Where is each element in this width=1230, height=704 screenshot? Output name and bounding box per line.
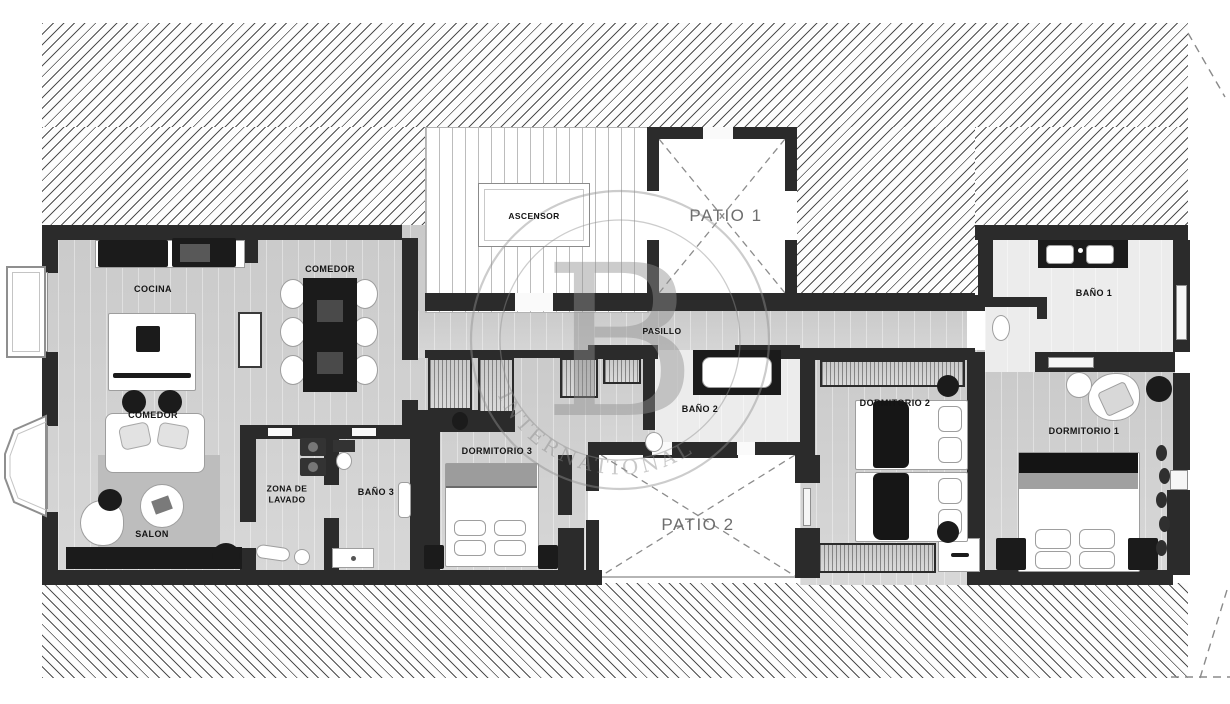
kitchen-appliance (98, 240, 168, 267)
room-label-zona-line2: LAVADO (268, 495, 305, 505)
stove (172, 238, 236, 267)
watermark-letter: B (543, 220, 697, 465)
vanity-counter (1038, 240, 1128, 268)
sink (1086, 245, 1114, 264)
pillow (1079, 529, 1115, 549)
chaise-seat (1097, 381, 1135, 417)
pillow (1079, 551, 1115, 569)
cooktop (180, 244, 210, 262)
plant (1156, 540, 1167, 556)
bedside-lamp (937, 521, 959, 543)
wall (985, 570, 1173, 585)
wall (978, 297, 1038, 307)
plant (1159, 468, 1170, 484)
sofa-cushion (118, 421, 152, 451)
wall (795, 455, 820, 483)
pillow (494, 520, 526, 536)
hatch-region-mid (797, 127, 978, 295)
window (1176, 285, 1187, 340)
dresser-handle (951, 553, 969, 557)
room-label-zona-line1: ZONA DE (267, 484, 308, 494)
room-label-dormitorio2: DORMITORIO 2 (860, 398, 931, 408)
door-opening (703, 127, 733, 139)
room-label-dormitorio1: DORMITORIO 1 (1049, 426, 1120, 436)
pillow (938, 406, 962, 432)
dining-table (303, 278, 357, 392)
door-opening (268, 428, 292, 436)
hatch-region-top-left (42, 127, 425, 225)
dashed-boundary-top-right (1180, 25, 1230, 105)
balcony-inner-line (12, 272, 40, 352)
window (803, 488, 811, 526)
door-opening (352, 428, 376, 436)
pillow (938, 478, 962, 504)
coffee-table-book (151, 495, 173, 514)
wall (978, 240, 993, 300)
plant (1156, 445, 1167, 461)
pillow (454, 540, 486, 556)
toilet-bowl (336, 452, 352, 470)
window (1170, 470, 1188, 490)
plant (212, 543, 240, 569)
bed-runner (873, 473, 909, 540)
hatch-region-bottom (42, 583, 1188, 678)
pillow (454, 520, 486, 536)
pillow (938, 437, 962, 463)
wall (1173, 373, 1190, 470)
wall (800, 360, 815, 455)
plant-pot (1146, 376, 1172, 402)
wall (240, 548, 256, 570)
placemat (317, 352, 343, 374)
dryer (300, 458, 326, 476)
pillow (1035, 529, 1071, 549)
toilet (333, 440, 355, 452)
wardrobe (818, 543, 936, 573)
room-label-salon: SALON (135, 529, 169, 539)
bed (855, 400, 968, 470)
wall (785, 240, 797, 293)
wall (785, 139, 797, 191)
placemat (317, 300, 343, 322)
wall (42, 570, 602, 585)
dryer-door (308, 462, 318, 472)
room-label-zona-de-lavado: ZONA DE LAVADO (267, 484, 308, 507)
wall-niche (1048, 357, 1094, 368)
wall (800, 348, 975, 360)
room-label-comedor: COMEDOR (305, 264, 355, 274)
pillow (1035, 551, 1071, 569)
sofa (105, 413, 205, 473)
room-label-ascensor: ASCENSOR (508, 211, 559, 221)
wall (402, 238, 418, 360)
laundry-basket (294, 549, 310, 565)
kitchen-island (108, 313, 196, 391)
wall (586, 520, 599, 578)
room-label-bano1: BAÑO 1 (1076, 288, 1112, 298)
bed (1018, 452, 1140, 572)
bedside-lamp (937, 375, 959, 397)
wall (558, 528, 584, 570)
wall (1167, 490, 1190, 575)
wall (1037, 297, 1047, 319)
coffee-table (140, 484, 184, 528)
pantry-cabinet (238, 312, 262, 368)
room-label-bano3: BAÑO 3 (358, 487, 394, 497)
bed-runner (873, 401, 909, 468)
chaise-chair (1088, 373, 1140, 421)
room-label-pasillo: PASILLO (642, 326, 681, 336)
side-table (1066, 372, 1092, 398)
wall (975, 225, 1188, 240)
room-label-bano2: BAÑO 2 (682, 404, 718, 414)
dresser (938, 538, 980, 572)
bay-window (2, 414, 48, 518)
island-bar-edge (113, 373, 191, 378)
nightstand (996, 538, 1026, 570)
hatch-region-top-right (975, 127, 1188, 225)
wall (240, 430, 256, 522)
wall (795, 528, 820, 578)
plant (1159, 516, 1170, 532)
faucet (1078, 248, 1083, 253)
room-label-patio2: PATIO 2 (661, 515, 734, 535)
shower-drain (351, 556, 356, 561)
sink (1046, 245, 1074, 264)
washer-door (308, 442, 318, 452)
plant (1156, 492, 1167, 508)
room-label-cocina: COCINA (134, 284, 172, 294)
nightstand (1128, 538, 1158, 570)
toilet-bowl (992, 315, 1010, 341)
floor-plan: B INTERNATIONAL COCINA COMEDOR COMEDOR S… (0, 0, 1230, 704)
plant (98, 489, 122, 511)
room-label-comedor-kitchen: COMEDOR (128, 410, 178, 420)
hatch-region-top (42, 23, 1188, 127)
shower-tray (332, 548, 374, 568)
sofa-cushion (156, 422, 190, 451)
nightstand (538, 545, 558, 569)
bed-blanket (1019, 473, 1138, 489)
dashed-boundary-bottom-right (1165, 580, 1230, 680)
island-sink (136, 326, 160, 352)
sink (398, 482, 411, 518)
balcony (6, 266, 46, 358)
pillow (494, 540, 526, 556)
nightstand (424, 545, 444, 569)
washing-machine (300, 438, 326, 456)
patio2-bottom-edge (588, 576, 800, 578)
room-label-dormitorio3: DORMITORIO 3 (462, 446, 533, 456)
room-label-patio1: PATIO 1 (689, 206, 762, 226)
bed-throw (1019, 453, 1138, 473)
